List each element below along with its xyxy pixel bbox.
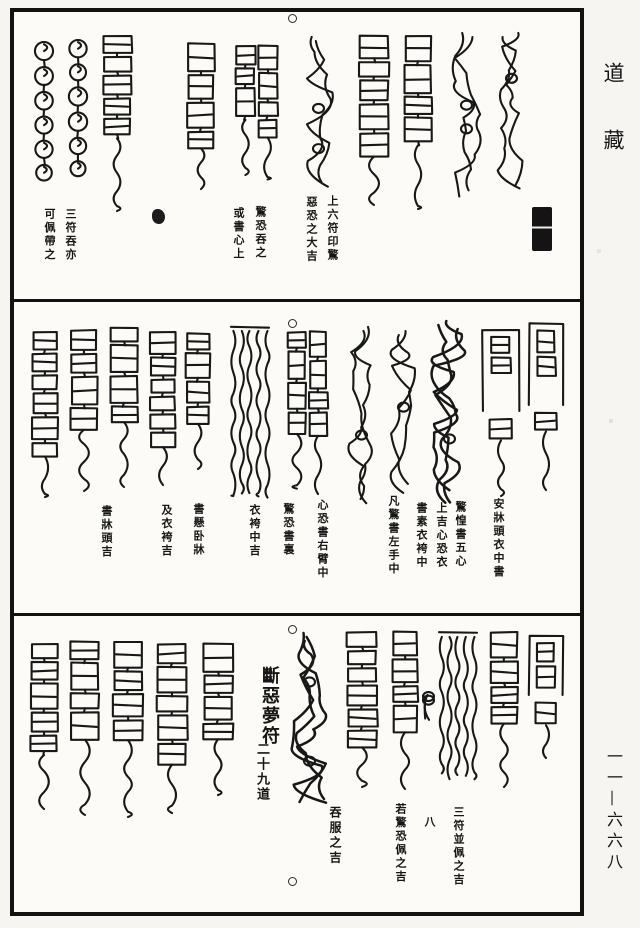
talisman-glyph: [232, 40, 280, 190]
caption-column: 書牀頭吉: [98, 505, 114, 559]
caption-column: 三符並佩之吉: [450, 806, 466, 887]
caption-column: 三符吞亦: [62, 208, 78, 262]
talisman-glyph: [66, 326, 102, 494]
caption-column: 惡恐之大吉: [303, 196, 319, 264]
talisman-glyph: [486, 628, 522, 790]
talisman-glyph: [388, 628, 422, 792]
caption-column: 及衣袴吉: [158, 504, 174, 558]
talisman-glyph: [152, 640, 192, 816]
talisman-glyph: [62, 34, 94, 200]
caption-column: 安牀頭衣中書: [490, 498, 506, 579]
talisman-glyph: [354, 32, 394, 208]
talisman-glyph: [183, 40, 219, 192]
seal-stamp: [532, 207, 552, 251]
caption-column: 上六符印驚: [324, 195, 340, 263]
ink-mark: [152, 209, 165, 224]
caption-column: 上吉心恐衣: [433, 502, 449, 570]
caption-column: 或書心上: [230, 207, 246, 261]
talisman-glyph: [400, 32, 436, 212]
ring-mark: [288, 877, 297, 886]
talisman-glyph: [26, 640, 62, 812]
small-annotation-mark: [420, 690, 436, 714]
talisman-glyph: [198, 640, 238, 798]
caption-column: 可佩帶之: [41, 208, 57, 262]
talisman-glyph: [28, 36, 60, 196]
talisman-glyph: [342, 628, 382, 790]
caption-column: 凡驚書左手中: [385, 495, 401, 576]
paper-noise: [0, 0, 2, 2]
caption-column: 八: [421, 816, 437, 830]
caption-column: 驚恐書裏: [280, 503, 296, 557]
register-divider: [10, 613, 584, 616]
section-title: 斷惡夢符: [256, 666, 282, 746]
talisman-glyph: [286, 628, 332, 810]
talisman-glyph: [106, 324, 142, 490]
caption-column: 衣袴中吉: [246, 504, 262, 558]
talisman-glyph: [447, 28, 485, 202]
talisman-glyph: [436, 628, 480, 786]
ring-mark: [288, 14, 297, 23]
talisman-glyph: [28, 328, 62, 500]
caption-column: 心恐書右臂中: [314, 499, 330, 580]
collection-title: 道藏: [598, 62, 628, 196]
talisman-glyph: [108, 638, 148, 820]
talisman-glyph: [228, 322, 272, 502]
page-number: 一一—六六八: [601, 748, 625, 874]
talisman-glyph: [526, 628, 566, 762]
talisman-glyph: [298, 32, 338, 188]
caption-column: 若驚恐佩之吉: [392, 803, 408, 884]
talisman-glyph: [386, 326, 420, 492]
caption-column: 驚恐吞之: [252, 206, 268, 260]
scanned-page: { "page": { "description": "Woodblock-pr…: [0, 0, 640, 928]
register-divider: [10, 299, 584, 302]
talisman-glyph: [526, 316, 566, 494]
caption-column: 書懸卧牀: [190, 503, 206, 557]
talisman-glyph: [98, 32, 136, 214]
section-title-sub: 二十九道: [252, 742, 271, 802]
talisman-glyph: [426, 316, 472, 502]
talisman-glyph: [344, 322, 378, 500]
talisman-glyph: [146, 328, 180, 488]
talisman-glyph: [66, 638, 104, 818]
talisman-glyph: [493, 28, 529, 196]
caption-column: 書素衣袴中: [413, 502, 429, 570]
talisman-glyph: [182, 330, 214, 472]
caption-column: 吞服之吉: [327, 806, 344, 866]
talisman-glyph: [284, 326, 330, 506]
caption-column: 驚惶書五心: [452, 501, 468, 569]
talisman-glyph: [480, 322, 522, 500]
